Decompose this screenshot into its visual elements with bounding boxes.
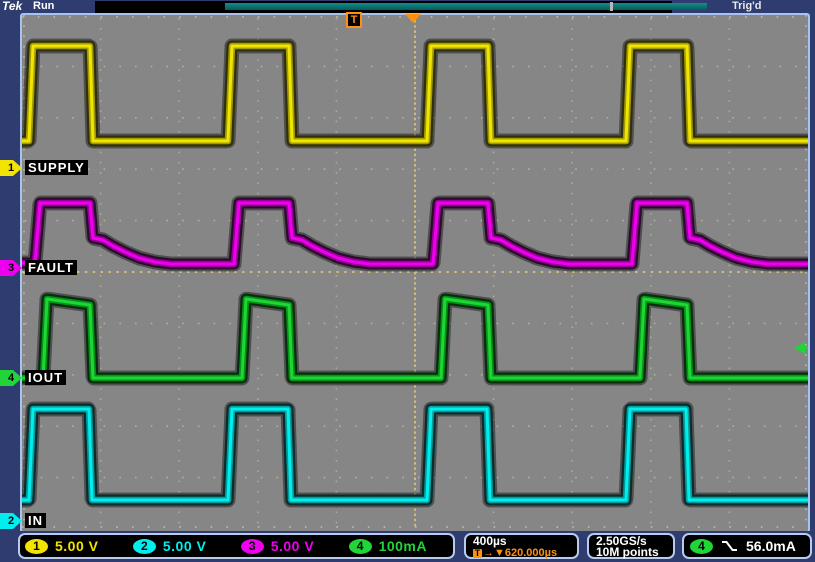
trigger-level-readout: 56.0mA: [746, 538, 796, 554]
channel-label-in: IN: [25, 513, 46, 528]
trigger-channel-badge: 4: [690, 539, 713, 554]
acquisition-status: Run: [33, 0, 54, 12]
title-bar: Tek Run Trig'd: [0, 0, 815, 13]
timebase-readout: 400µs: [473, 536, 577, 547]
acquisition-readout-box[interactable]: 2.50GS/s 10M points: [587, 533, 675, 559]
record-length-readout: 10M points: [596, 547, 673, 558]
channel-label-fault: FAULT: [25, 260, 77, 275]
horizontal-readout-box[interactable]: 400µs T →▼620.000µs: [464, 533, 579, 559]
tek-logo: Tek: [2, 0, 22, 13]
bottom-readout-bar: 15.00 V25.00 V35.00 V4100mA 400µs T →▼62…: [0, 531, 815, 562]
channel-readouts-box[interactable]: 15.00 V25.00 V35.00 V4100mA: [18, 533, 455, 559]
channel-badge-1: 1: [25, 539, 48, 554]
channel-badge-2: 2: [133, 539, 156, 554]
channel-marker-1[interactable]: 1: [0, 160, 22, 176]
channel-scale-4: 100mA: [379, 538, 427, 554]
channel-label-iout: IOUT: [25, 370, 66, 385]
channel-marker-2[interactable]: 2: [0, 513, 22, 529]
trigger-delay-value: →▼620.000µs: [483, 548, 557, 559]
channel-marker-4[interactable]: 4: [0, 370, 22, 386]
record-view-fill: [225, 3, 707, 10]
channel-badge-3: 3: [241, 539, 264, 554]
oscilloscope-screen: Tek Run Trig'd T 1SUPPLY3FAULT4IOUT2IN 1…: [0, 0, 815, 562]
channel-badge-4: 4: [349, 539, 372, 554]
record-view-strip: [95, 1, 672, 13]
trigger-delay-readout: T →▼620.000µs: [473, 548, 577, 559]
channel-readout-4[interactable]: 4100mA: [349, 538, 427, 554]
channel-label-supply: SUPPLY: [25, 160, 88, 175]
graticule: [20, 13, 810, 533]
trigger-readout-box[interactable]: 4 56.0mA: [682, 533, 812, 559]
channel-scale-3: 5.00 V: [271, 538, 314, 554]
trigger-t-marker[interactable]: T: [346, 12, 362, 28]
record-view-end-bracket: [610, 2, 613, 11]
trigger-delay-t-icon: T: [473, 549, 482, 558]
channel-readout-1[interactable]: 15.00 V: [25, 538, 98, 554]
channel-scale-2: 5.00 V: [163, 538, 206, 554]
trigger-status: Trig'd: [732, 0, 762, 12]
channel-readout-2[interactable]: 25.00 V: [133, 538, 206, 554]
channel-readout-3[interactable]: 35.00 V: [241, 538, 314, 554]
channel-scale-1: 5.00 V: [55, 538, 98, 554]
falling-edge-icon: [721, 539, 738, 553]
trigger-position-triangle-icon[interactable]: [405, 14, 421, 23]
channel-marker-3[interactable]: 3: [0, 260, 22, 276]
